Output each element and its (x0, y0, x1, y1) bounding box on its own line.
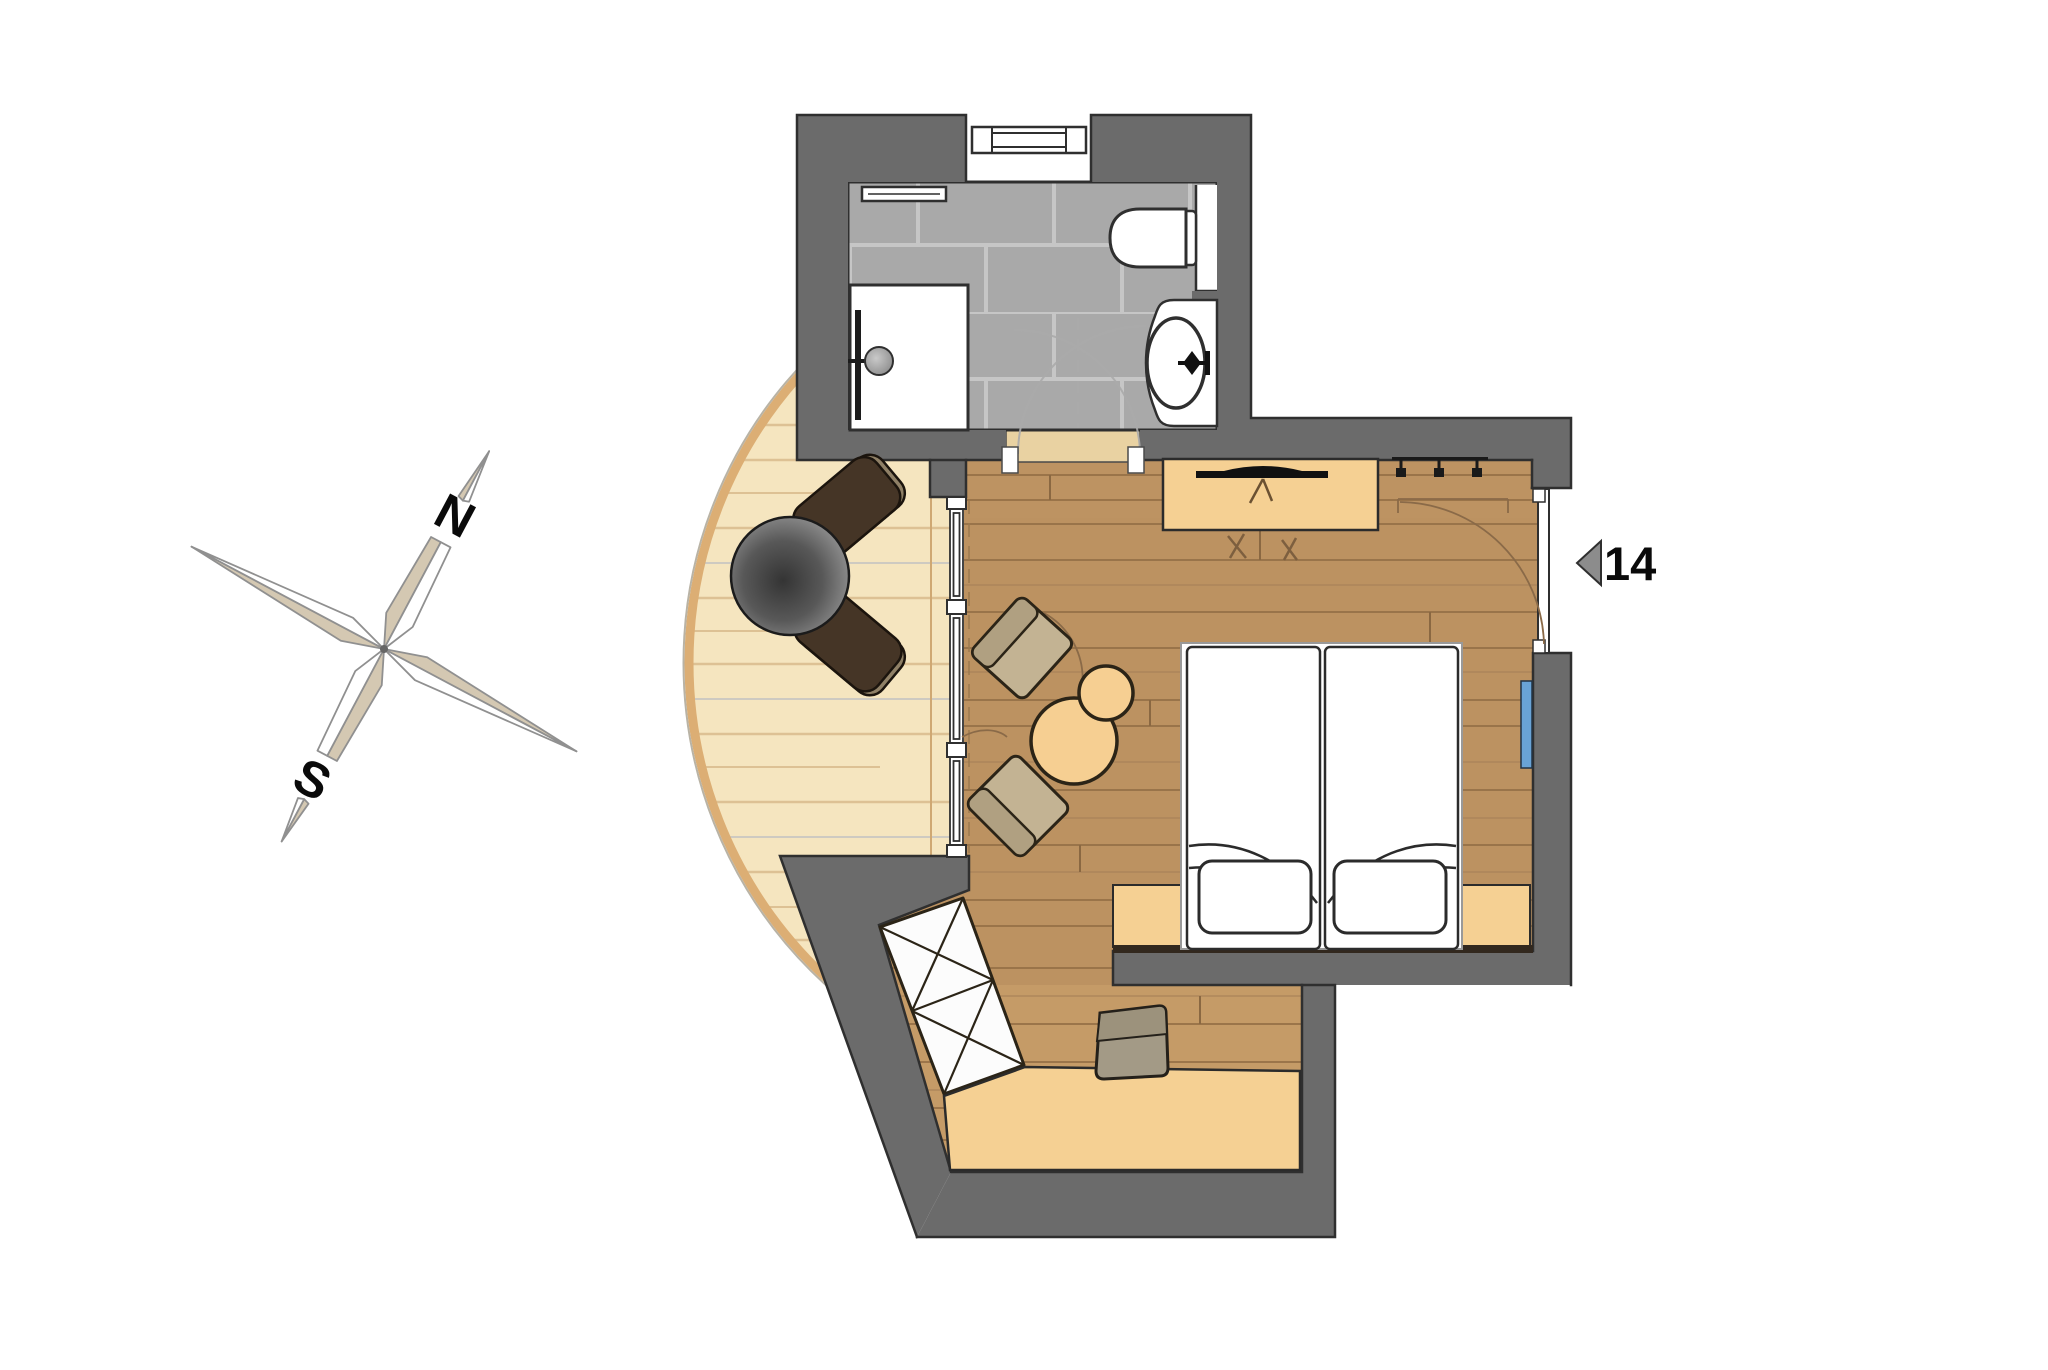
svg-text:14: 14 (1604, 537, 1656, 590)
